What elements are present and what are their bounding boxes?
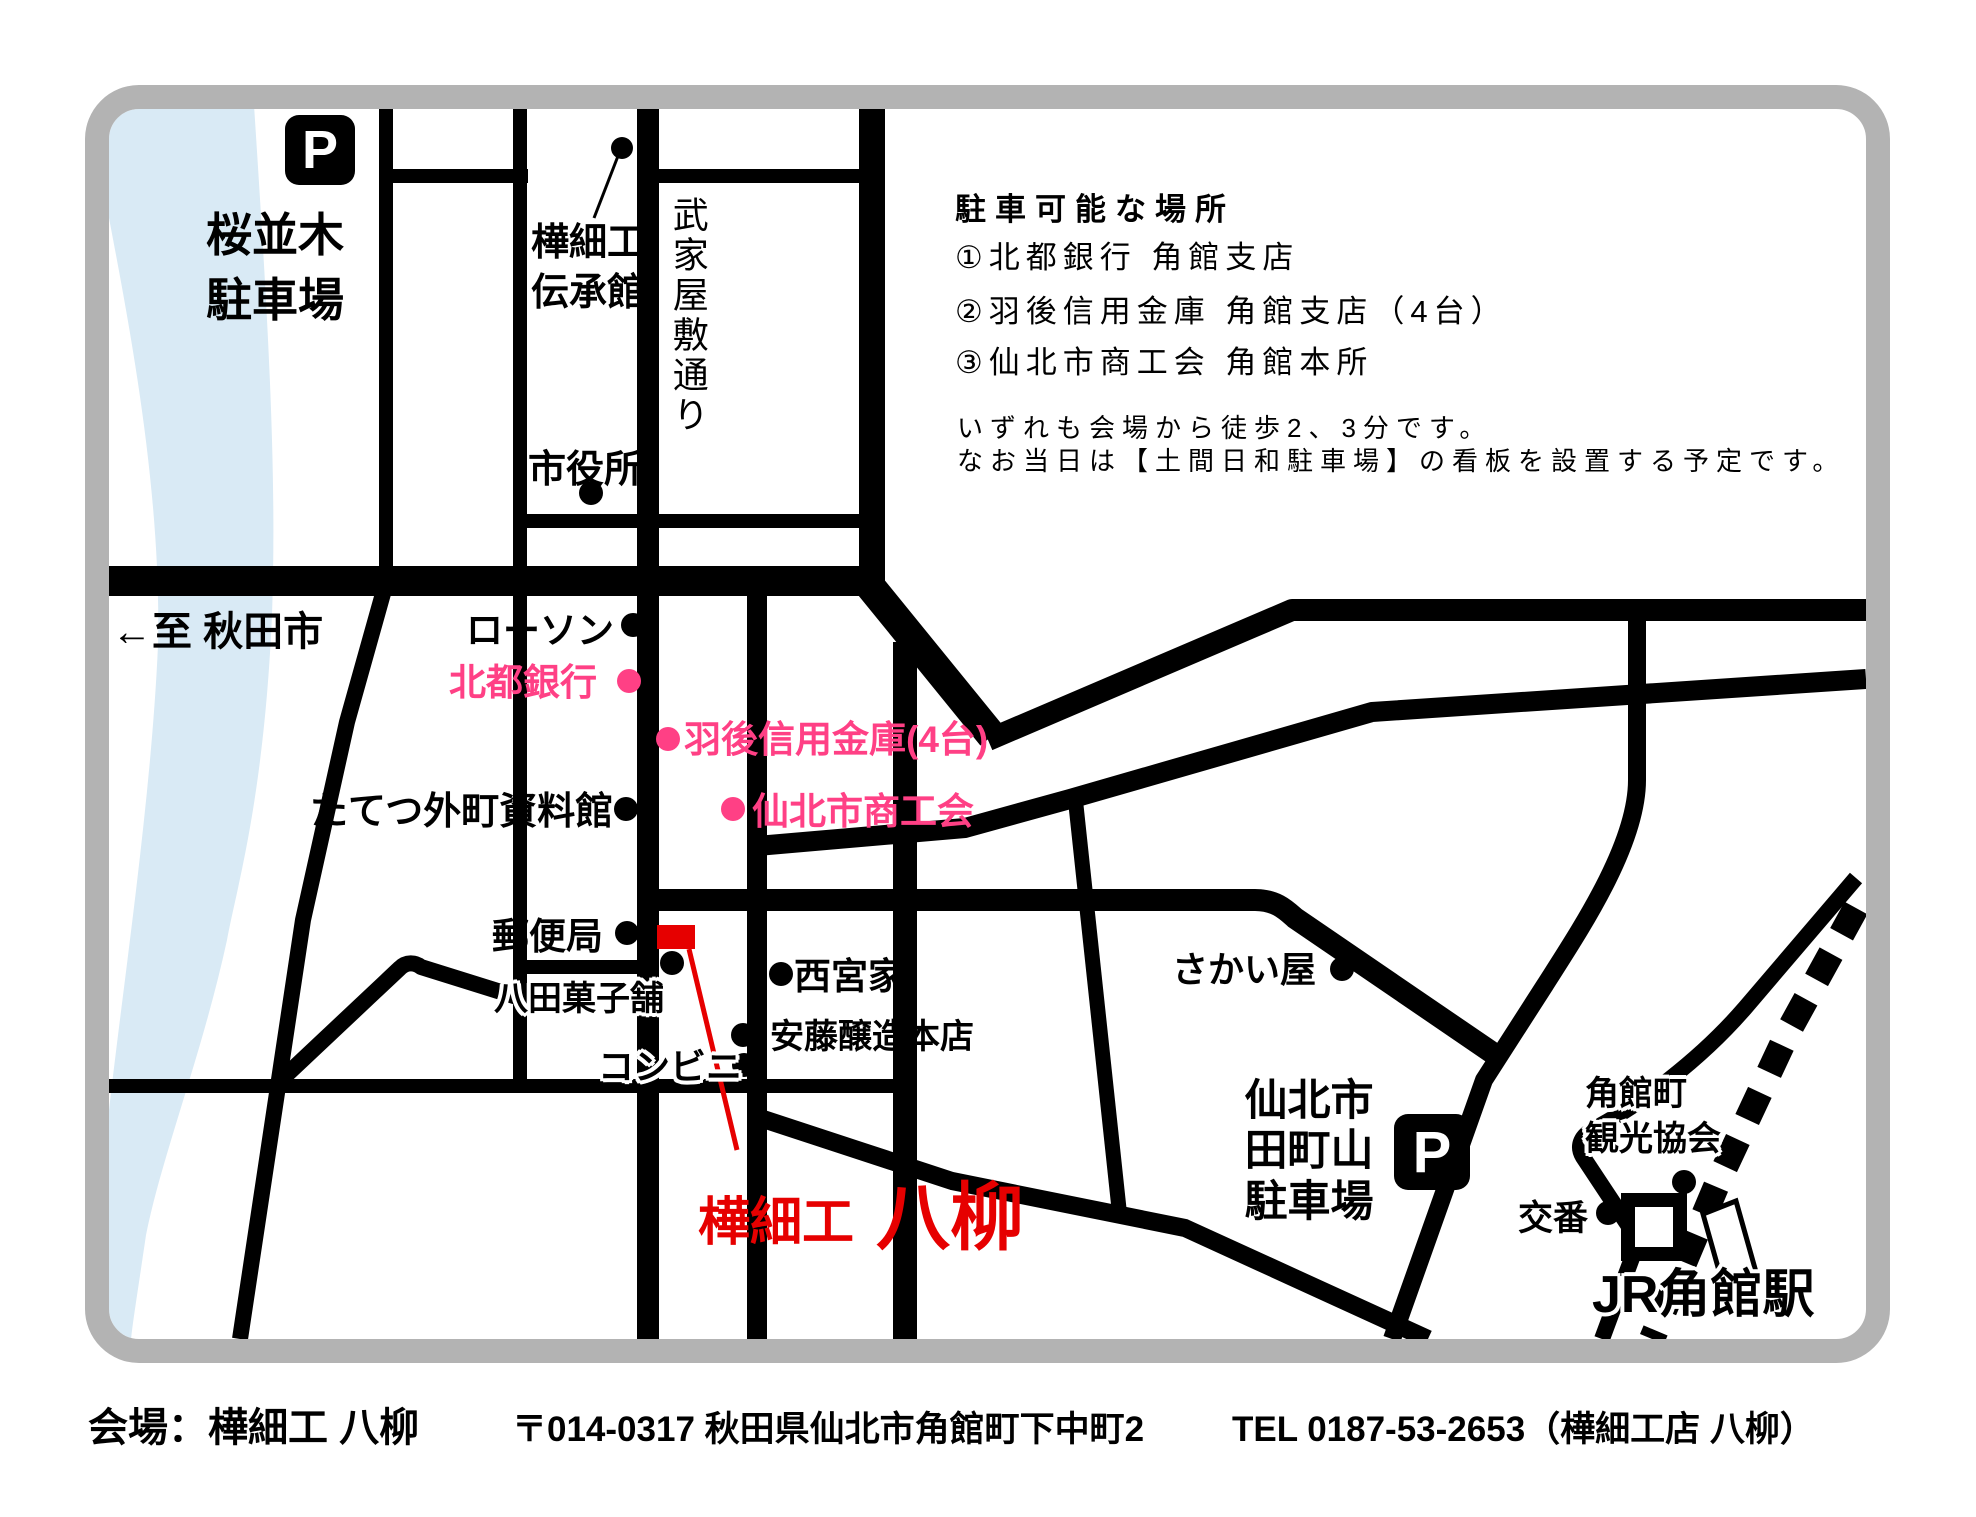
parking-info-note-2: なお当日は【土間日和駐車場】の看板を設置する予定です。 [957,445,1845,479]
shokokai-label: 仙北市商工会 [752,788,974,836]
post-office-dot [615,921,639,945]
access-map-page: P P 桜並木 駐車場 樺細工 伝承館 武家屋敷通り 市役所 駐車可能な場所 ①… [0,0,1976,1517]
road-peak [281,963,517,1080]
denshokan-leader-line [594,156,618,218]
kanko-kyokai-line2: 観光協会 [1585,1117,1721,1162]
tamachiyama-line1: 仙北市 [1230,1076,1388,1126]
parking-info-header: 駐車可能な場所 [955,190,1235,230]
hokuto-bank-label: 北都銀行 [449,659,597,707]
venue-label-part1: 樺細工 [698,1190,854,1258]
hatta-dot [660,951,684,975]
bukeyashiki-street-label: 武家屋敷通り [664,196,711,436]
koban-dot [1596,1201,1620,1225]
sakura-parking-icon: P [285,115,355,185]
kanko-kyokai-line1: 角館町 [1585,1072,1721,1117]
ando-jozo-label: 安藤醸造本店 [770,1015,974,1059]
sakura-parking-line1: 桜並木 [165,203,385,268]
kanko-kyokai-dot [1672,1170,1696,1194]
footer-tel: TEL 0187-53-2653（樺細工店 八柳） [1232,1407,1815,1453]
ugo-shinkin-label: 羽後信用金庫(4台) [684,716,988,764]
nishinomiya-dot [769,962,793,986]
denshokan-dot [611,137,633,159]
road-right-bend [1392,610,1637,1339]
ugo-shinkin-dot [656,727,680,751]
parking-info-item-2: ②羽後信用金庫 角館支店（4台） [955,292,1508,332]
tatetsu-dot [614,797,638,821]
koban-label: 交番 [1518,1196,1588,1242]
tamachiyama-parking-label: 仙北市 田町山 駐車場 [1230,1076,1388,1227]
denshokan-line1: 樺細工 [508,218,668,268]
road-vertical-g [1075,796,1120,1218]
road-upper-diagonal [988,610,1866,740]
denshokan-line2: 伝承館 [508,268,668,318]
jr-station-label: JR角館駅 [1592,1262,1814,1330]
footer-venue: 会場：樺細工 八柳 [88,1402,419,1454]
lawson-dot [621,613,645,637]
kanko-kyokai-label: 角館町 観光協会 [1585,1072,1721,1162]
venue-label-part2: 八柳 [876,1170,1024,1266]
to-akita-label: ←至 秋田市 [112,606,323,658]
station-square [1628,1200,1680,1254]
shokokai-dot [721,797,745,821]
venue-marker-square [657,925,695,949]
convenience-label: コンビニ [598,1044,742,1091]
sakura-parking-line2: 駐車場 [165,268,385,333]
hokuto-bank-dot [617,669,641,693]
sakura-parking-label: 桜並木 駐車場 [165,203,385,334]
parking-info-item-3: ③仙北市商工会 角館本所 [955,343,1373,383]
post-office-label: 郵便局 [492,913,603,961]
lawson-label: ローソン [466,607,614,655]
tatetsu-museum-label: たてつ外町資料館 [310,788,613,837]
footer-address: 〒014-0317 秋田県仙北市角館町下中町2 [512,1407,1144,1453]
city-hall-label: 市役所 [528,446,642,495]
tamachiyama-line2: 田町山 [1230,1126,1388,1176]
tamachiyama-line3: 駐車場 [1230,1177,1388,1227]
parking-info-item-1: ①北都銀行 角館支店 [955,238,1299,278]
nishinomiya-label: 西宮家 [794,953,905,1001]
denshokan-label: 樺細工 伝承館 [508,218,668,318]
sakaiya-dot [1330,957,1354,981]
sakaiya-label: さかい屋 [1172,947,1316,994]
tamachiyama-parking-icon: P [1394,1114,1470,1190]
parking-info-note-1: いずれも会場から徒歩2、3分です。 [957,412,1492,446]
hatta-kashiho-label: 八田菓子舗 [494,977,664,1021]
